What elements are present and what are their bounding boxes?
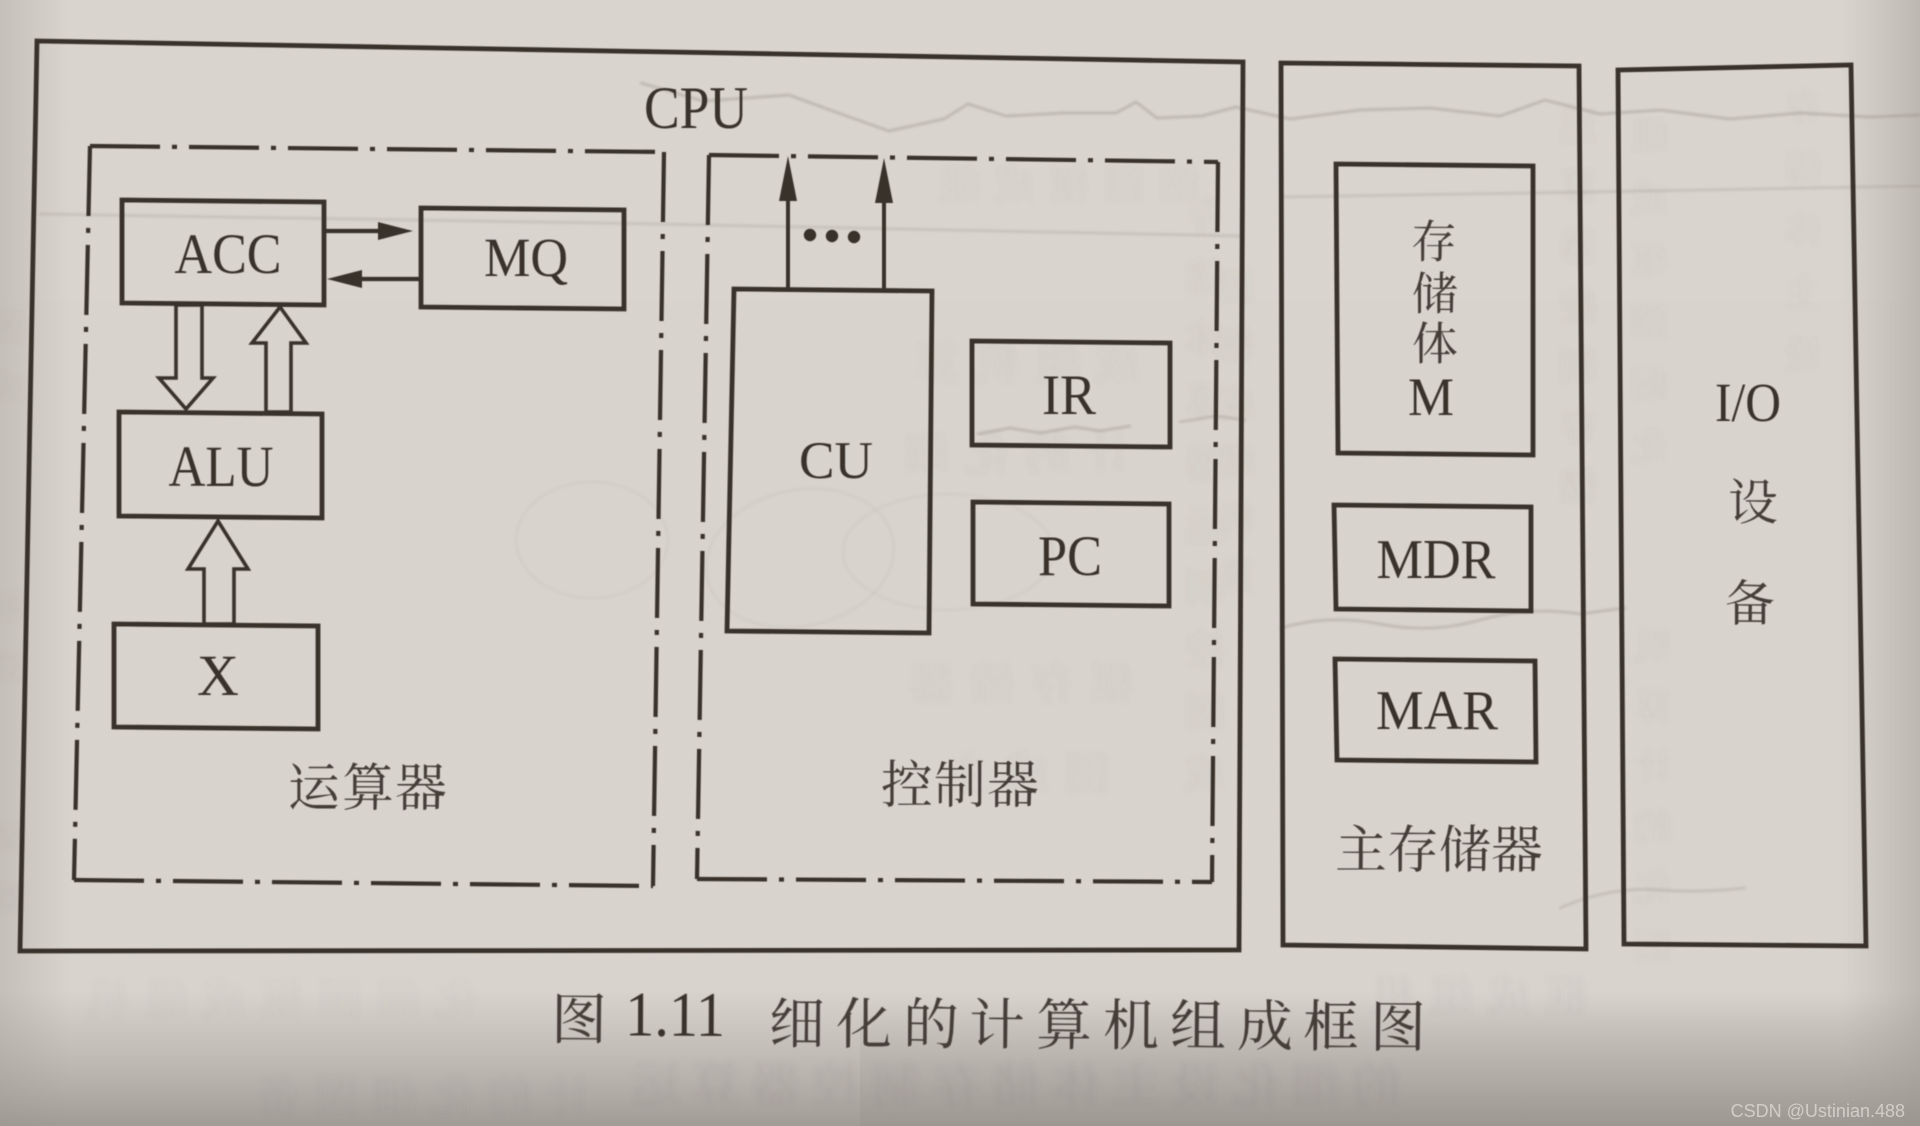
svg-text:CPU: CPU (644, 75, 748, 141)
svg-text:M: M (1408, 367, 1454, 427)
svg-text:CU: CU (799, 432, 873, 490)
svg-text:ACC: ACC (175, 223, 282, 286)
svg-text:1.11: 1.11 (625, 978, 725, 1050)
svg-text:X: X (197, 643, 239, 708)
svg-text:MDR: MDR (1377, 529, 1497, 591)
svg-text:ALU: ALU (169, 434, 274, 499)
svg-text:CSDN @Ustinian.488: CSDN @Ustinian.488 (1731, 1101, 1905, 1121)
svg-text:IR: IR (1042, 364, 1096, 427)
svg-text:I/O: I/O (1715, 372, 1781, 433)
svg-text:MAR: MAR (1376, 680, 1499, 742)
svg-text:PC: PC (1038, 525, 1102, 588)
svg-text:MQ: MQ (484, 227, 568, 288)
